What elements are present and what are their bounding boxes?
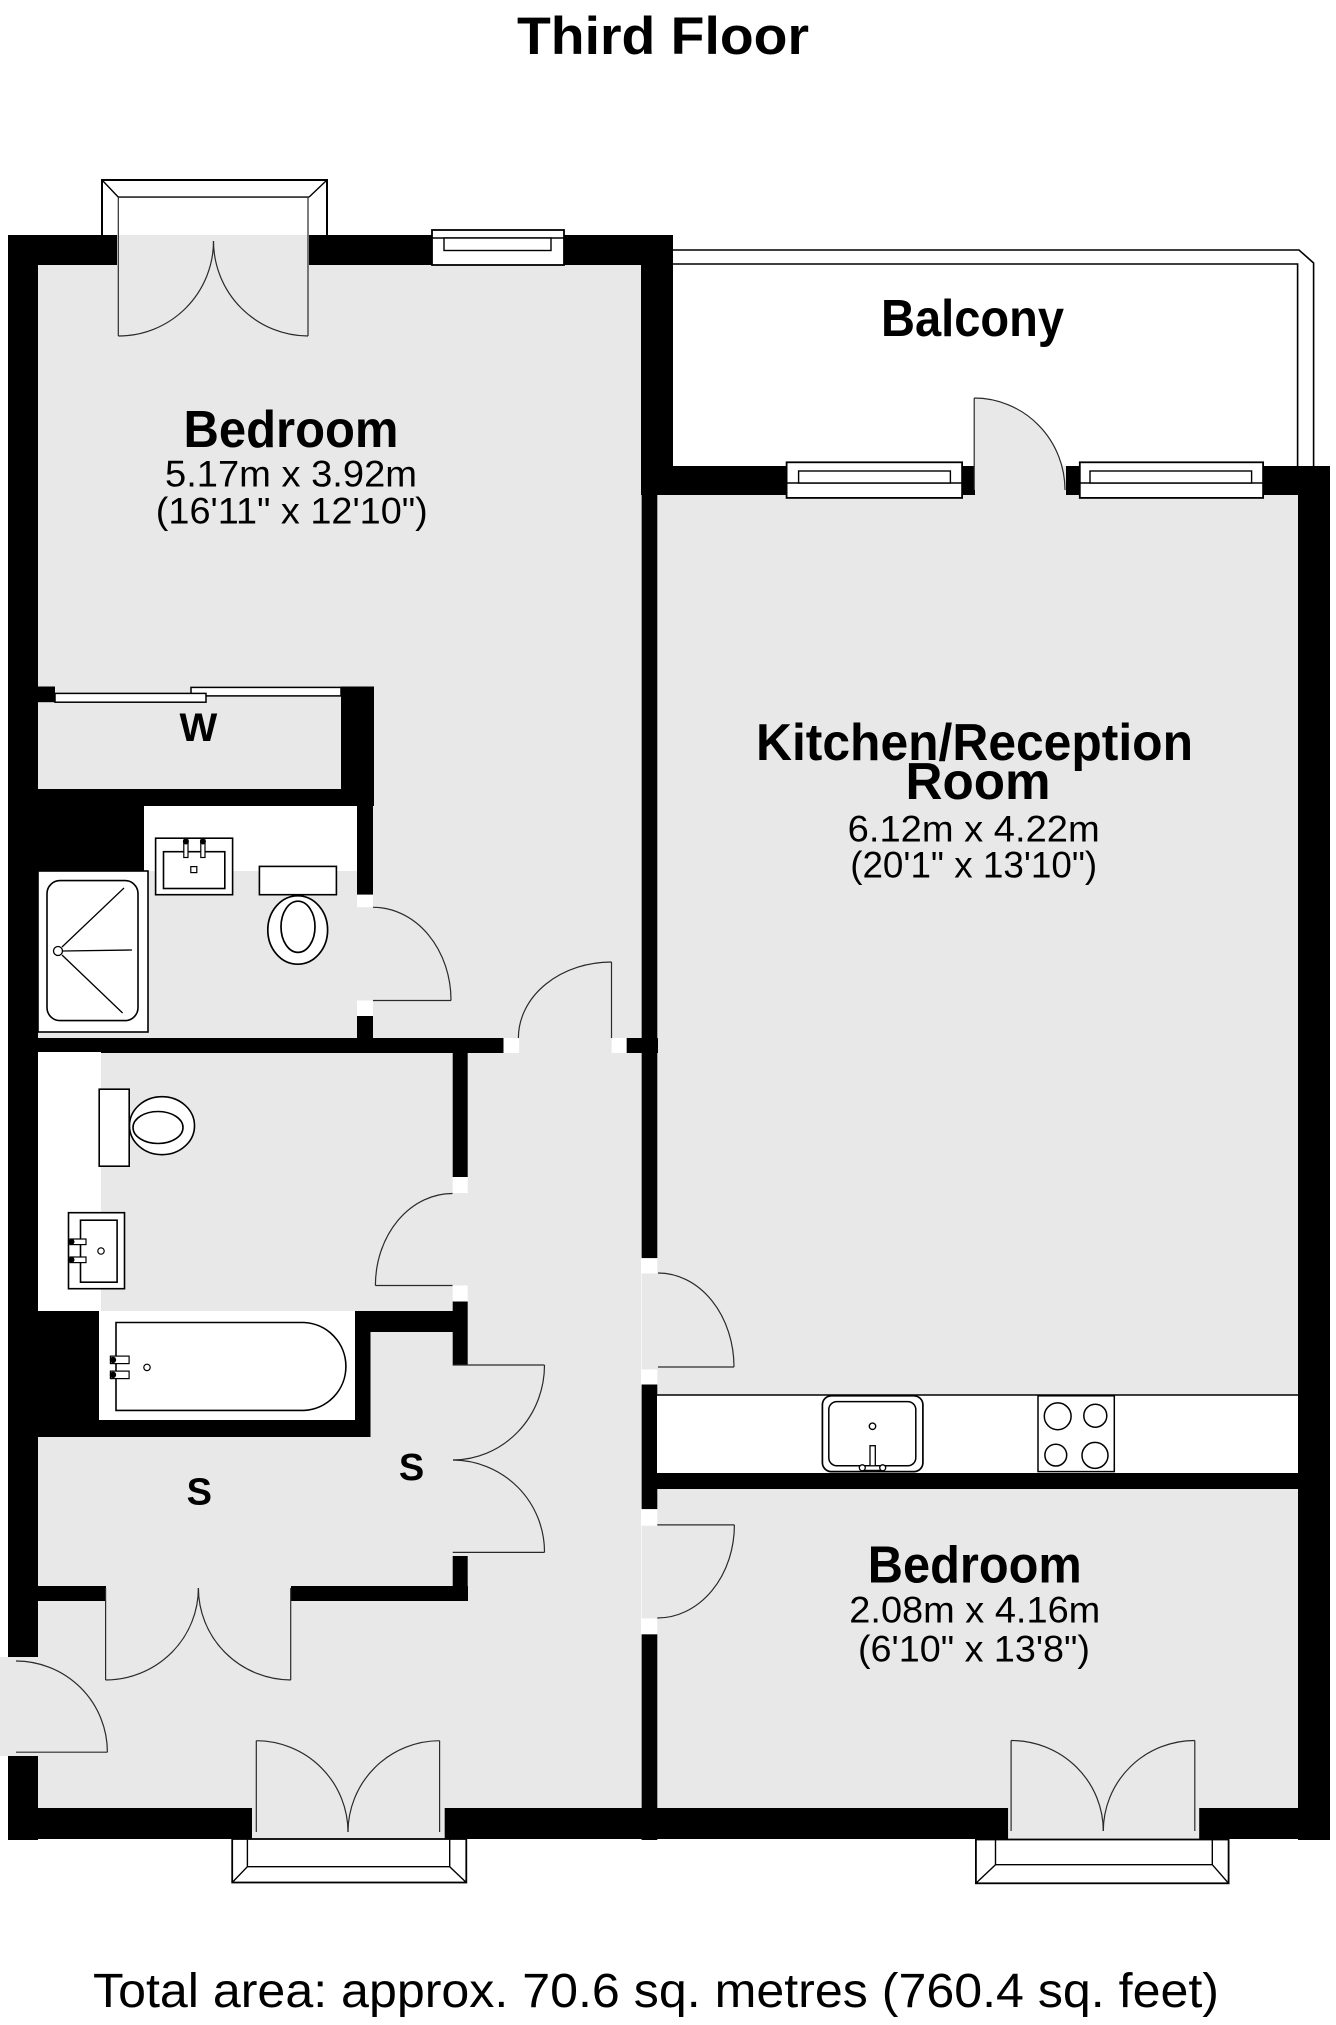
svg-text:W: W [180, 706, 218, 750]
svg-text:S: S [187, 1472, 212, 1514]
svg-text:Bedroom: Bedroom [184, 401, 399, 459]
svg-text:(20'1" x 13'10"): (20'1" x 13'10") [850, 845, 1097, 886]
svg-text:Bedroom: Bedroom [868, 1536, 1082, 1594]
svg-text:(16'11" x 12'10"): (16'11" x 12'10") [156, 490, 428, 531]
svg-text:Balcony: Balcony [881, 290, 1064, 348]
svg-text:5.17m x 3.92m: 5.17m x 3.92m [165, 453, 417, 494]
svg-text:Room: Room [906, 753, 1051, 811]
svg-text:(6'10" x 13'8"): (6'10" x 13'8") [858, 1629, 1090, 1670]
svg-text:2.08m x 4.16m: 2.08m x 4.16m [849, 1590, 1100, 1631]
svg-text:Third Floor: Third Floor [517, 7, 809, 66]
svg-text:Total area: approx. 70.6 sq. m: Total area: approx. 70.6 sq. metres (760… [93, 1965, 1219, 2018]
svg-text:6.12m x 4.22m: 6.12m x 4.22m [848, 808, 1100, 849]
svg-text:S: S [399, 1447, 424, 1489]
